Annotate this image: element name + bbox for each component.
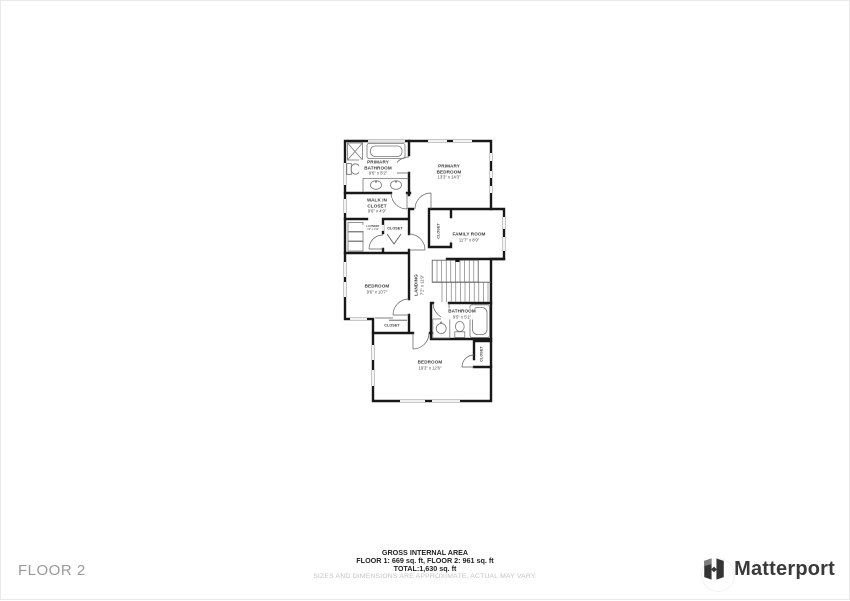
room-label-landing: LANDING 7'2" x 11'9" bbox=[414, 261, 425, 309]
bathroom-toilet bbox=[455, 322, 465, 338]
floor-label: FLOOR 2 bbox=[18, 562, 86, 579]
room-label-bedroom-closet: CLOSET bbox=[383, 324, 401, 329]
laundry-units bbox=[348, 223, 363, 252]
room-label-bedroom-mid: BEDROOM 9'6" x 10'7" bbox=[356, 284, 398, 295]
bathroom-vanity bbox=[433, 319, 450, 338]
room-label-walk-in-closet: WALK IN CLOSET 9'6" x 4'9" bbox=[362, 198, 392, 215]
room-label-bedroom-bottom: BEDROOM 19'3" x 12'6" bbox=[404, 360, 456, 371]
brand-wordmark: Matterport bbox=[734, 558, 835, 581]
room-label-family-room: FAMILY ROOM 11'7" x 8'9" bbox=[446, 232, 492, 243]
room-label-family-closet: CLOSET bbox=[437, 222, 442, 240]
matterport-m-icon bbox=[701, 556, 727, 582]
brand-logo: Matterport bbox=[701, 556, 835, 582]
floorplan-page: { "page": { "floor_label": "FLOOR 2" }, … bbox=[0, 0, 850, 600]
room-label-hall-closet: CLOSET bbox=[386, 227, 404, 232]
bathtub bbox=[367, 144, 405, 159]
floorplan-drawing bbox=[1, 1, 850, 601]
room-label-bathroom: BATHROOM 9'5" x 5'1" bbox=[441, 309, 483, 320]
closet-doors bbox=[375, 234, 407, 320]
room-label-primary-bathroom: PRIMARY BATHROOM 9'6" x 8'2" bbox=[359, 160, 397, 177]
double-sink-vanity bbox=[363, 179, 409, 192]
shower bbox=[348, 143, 363, 160]
room-label-primary-bedroom: PRIMARY BEDROOM 13'3" x 14'3" bbox=[428, 164, 470, 181]
stairs bbox=[432, 259, 491, 303]
room-label-laundry: LAUNDRY 3'0" x 4'10" bbox=[362, 225, 384, 231]
room-label-bottom-closet: CLOSET bbox=[480, 345, 485, 363]
